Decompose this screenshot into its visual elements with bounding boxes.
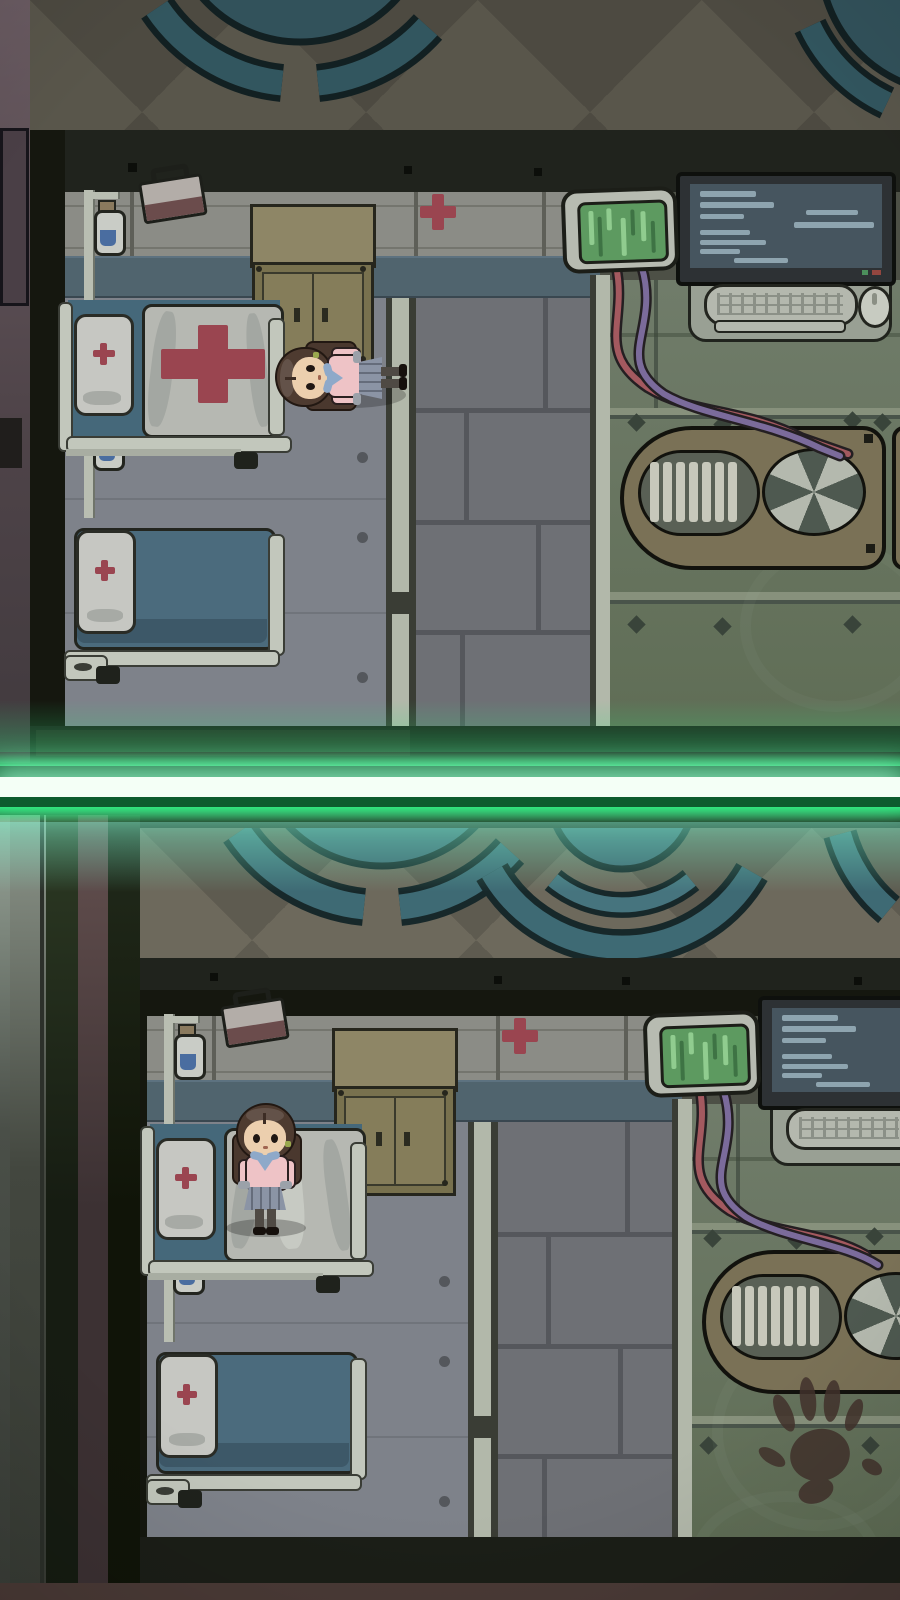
keyboard-tray bbox=[714, 320, 846, 333]
first-aid-kit[interactable] bbox=[218, 985, 288, 1048]
bottom-wall-band bbox=[140, 1537, 900, 1585]
machine-cables bbox=[0, 815, 900, 1600]
bed-rail bbox=[148, 1273, 323, 1280]
character-girl-standing[interactable] bbox=[232, 1103, 298, 1235]
iv-bag bbox=[174, 1034, 206, 1080]
keyboard[interactable] bbox=[786, 1108, 900, 1150]
status-led bbox=[872, 270, 881, 275]
game-screen bbox=[0, 0, 900, 1600]
bottom-outer-band bbox=[0, 1583, 900, 1600]
character-girl-lying[interactable] bbox=[275, 345, 407, 411]
bottom-wall-inset bbox=[36, 730, 410, 756]
hospital-bed-2[interactable] bbox=[56, 524, 296, 694]
mouse-wheel bbox=[872, 293, 877, 305]
power-led bbox=[862, 270, 868, 275]
computer-monitor[interactable] bbox=[676, 172, 896, 286]
vital-monitor[interactable] bbox=[643, 1010, 762, 1098]
mouse[interactable] bbox=[858, 286, 892, 328]
laser-beam-dark bbox=[0, 766, 900, 777]
vital-monitor-screen bbox=[659, 1023, 751, 1088]
hospital-bed-2[interactable] bbox=[138, 1348, 378, 1518]
bed-rail bbox=[66, 449, 241, 456]
vital-monitor-screen bbox=[577, 199, 669, 264]
hospital-bed-1[interactable] bbox=[56, 296, 296, 476]
scene-panel-bottom bbox=[0, 815, 900, 1600]
first-aid-kit[interactable] bbox=[136, 161, 206, 224]
laser-beam-core bbox=[0, 777, 900, 797]
scene-panel-top bbox=[0, 0, 900, 763]
iv-bag bbox=[94, 210, 126, 256]
laser-beam-dark bbox=[0, 797, 900, 807]
computer-monitor[interactable] bbox=[758, 996, 900, 1110]
vital-monitor[interactable] bbox=[561, 186, 680, 274]
